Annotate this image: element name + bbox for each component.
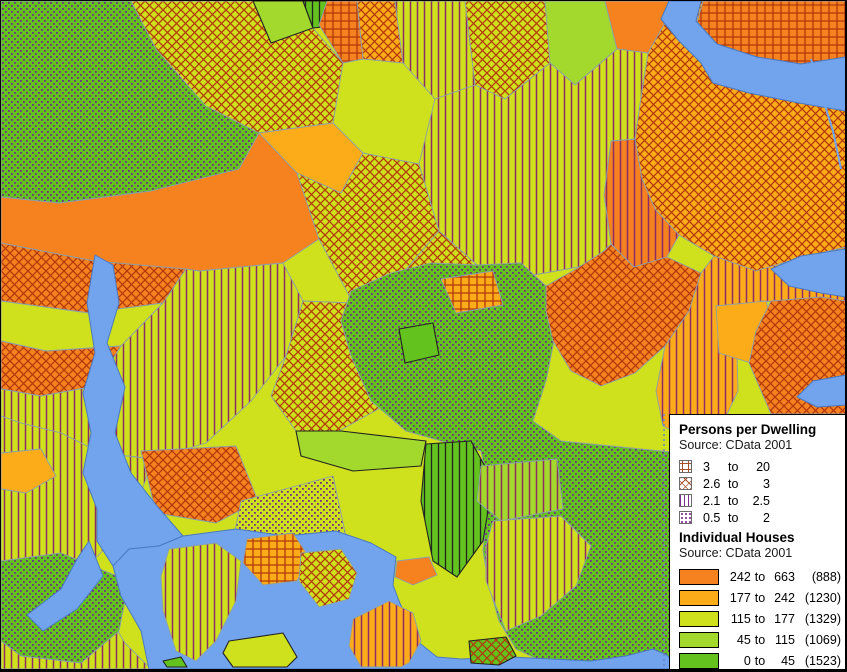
- range-to: 2.5: [746, 494, 770, 508]
- range-to-word: to: [728, 494, 746, 508]
- range-from: 0.5: [703, 511, 728, 525]
- range-to-word: to: [751, 591, 769, 605]
- grid-pattern-swatch: [679, 460, 692, 473]
- range-to-word: to: [728, 511, 746, 525]
- legend-persons-title: Persons per Dwelling: [679, 421, 841, 438]
- crosshatch-pattern-swatch: [679, 477, 692, 490]
- legend-color-row: 45 to 115 (1069): [679, 629, 841, 650]
- legend-color-row: 177 to 242 (1230): [679, 587, 841, 608]
- range-to: 45: [769, 654, 795, 668]
- range-to: 177: [769, 612, 795, 626]
- legend-pattern-row: 3 to 20: [679, 458, 841, 475]
- range-to-word: to: [728, 460, 746, 474]
- range-to: 115: [769, 633, 795, 647]
- range-to-word: to: [751, 570, 769, 584]
- legend-panel[interactable]: Persons per Dwelling Source: CData 2001 …: [669, 414, 847, 672]
- range-to-word: to: [751, 633, 769, 647]
- range-to: 2: [746, 511, 770, 525]
- legend-pattern-row: 0.5 to 2: [679, 509, 841, 526]
- range-to-word: to: [751, 612, 769, 626]
- range-from: 45: [725, 633, 751, 647]
- color-swatch: [679, 590, 719, 606]
- map-window: Persons per Dwelling Source: CData 2001 …: [0, 0, 847, 672]
- legend-houses-title: Individual Houses: [679, 529, 841, 546]
- feature-count: (1069): [795, 633, 841, 647]
- feature-count: (888): [795, 570, 841, 584]
- legend-persons-source: Source: CData 2001: [679, 438, 841, 453]
- vertical-lines-pattern-swatch: [679, 494, 692, 507]
- range-to: 3: [746, 477, 770, 491]
- range-from: 0: [725, 654, 751, 668]
- legend-color-row: 115 to 177 (1329): [679, 608, 841, 629]
- legend-pattern-row: 2.6 to 3: [679, 475, 841, 492]
- range-from: 2.6: [703, 477, 728, 491]
- legend-color-row: 0 to 45 (1523): [679, 650, 841, 671]
- feature-count: (1230): [795, 591, 841, 605]
- range-to: 20: [746, 460, 770, 474]
- range-to-word: to: [751, 654, 769, 668]
- color-swatch: [679, 611, 719, 627]
- range-from: 115: [725, 612, 751, 626]
- color-swatch: [679, 569, 719, 585]
- legend-houses-source: Source: CData 2001: [679, 546, 841, 561]
- range-to: 242: [769, 591, 795, 605]
- dots-pattern-swatch: [679, 511, 692, 524]
- range-to-word: to: [728, 477, 746, 491]
- range-from: 3: [703, 460, 728, 474]
- range-to: 663: [769, 570, 795, 584]
- range-from: 177: [725, 591, 751, 605]
- legend-color-row: 242 to 663 (888): [679, 566, 841, 587]
- range-from: 242: [725, 570, 751, 584]
- feature-count: (1523): [795, 654, 841, 668]
- color-swatch: [679, 632, 719, 648]
- feature-count: (1329): [795, 612, 841, 626]
- color-swatch: [679, 653, 719, 669]
- range-from: 2.1: [703, 494, 728, 508]
- legend-pattern-row: 2.1 to 2.5: [679, 492, 841, 509]
